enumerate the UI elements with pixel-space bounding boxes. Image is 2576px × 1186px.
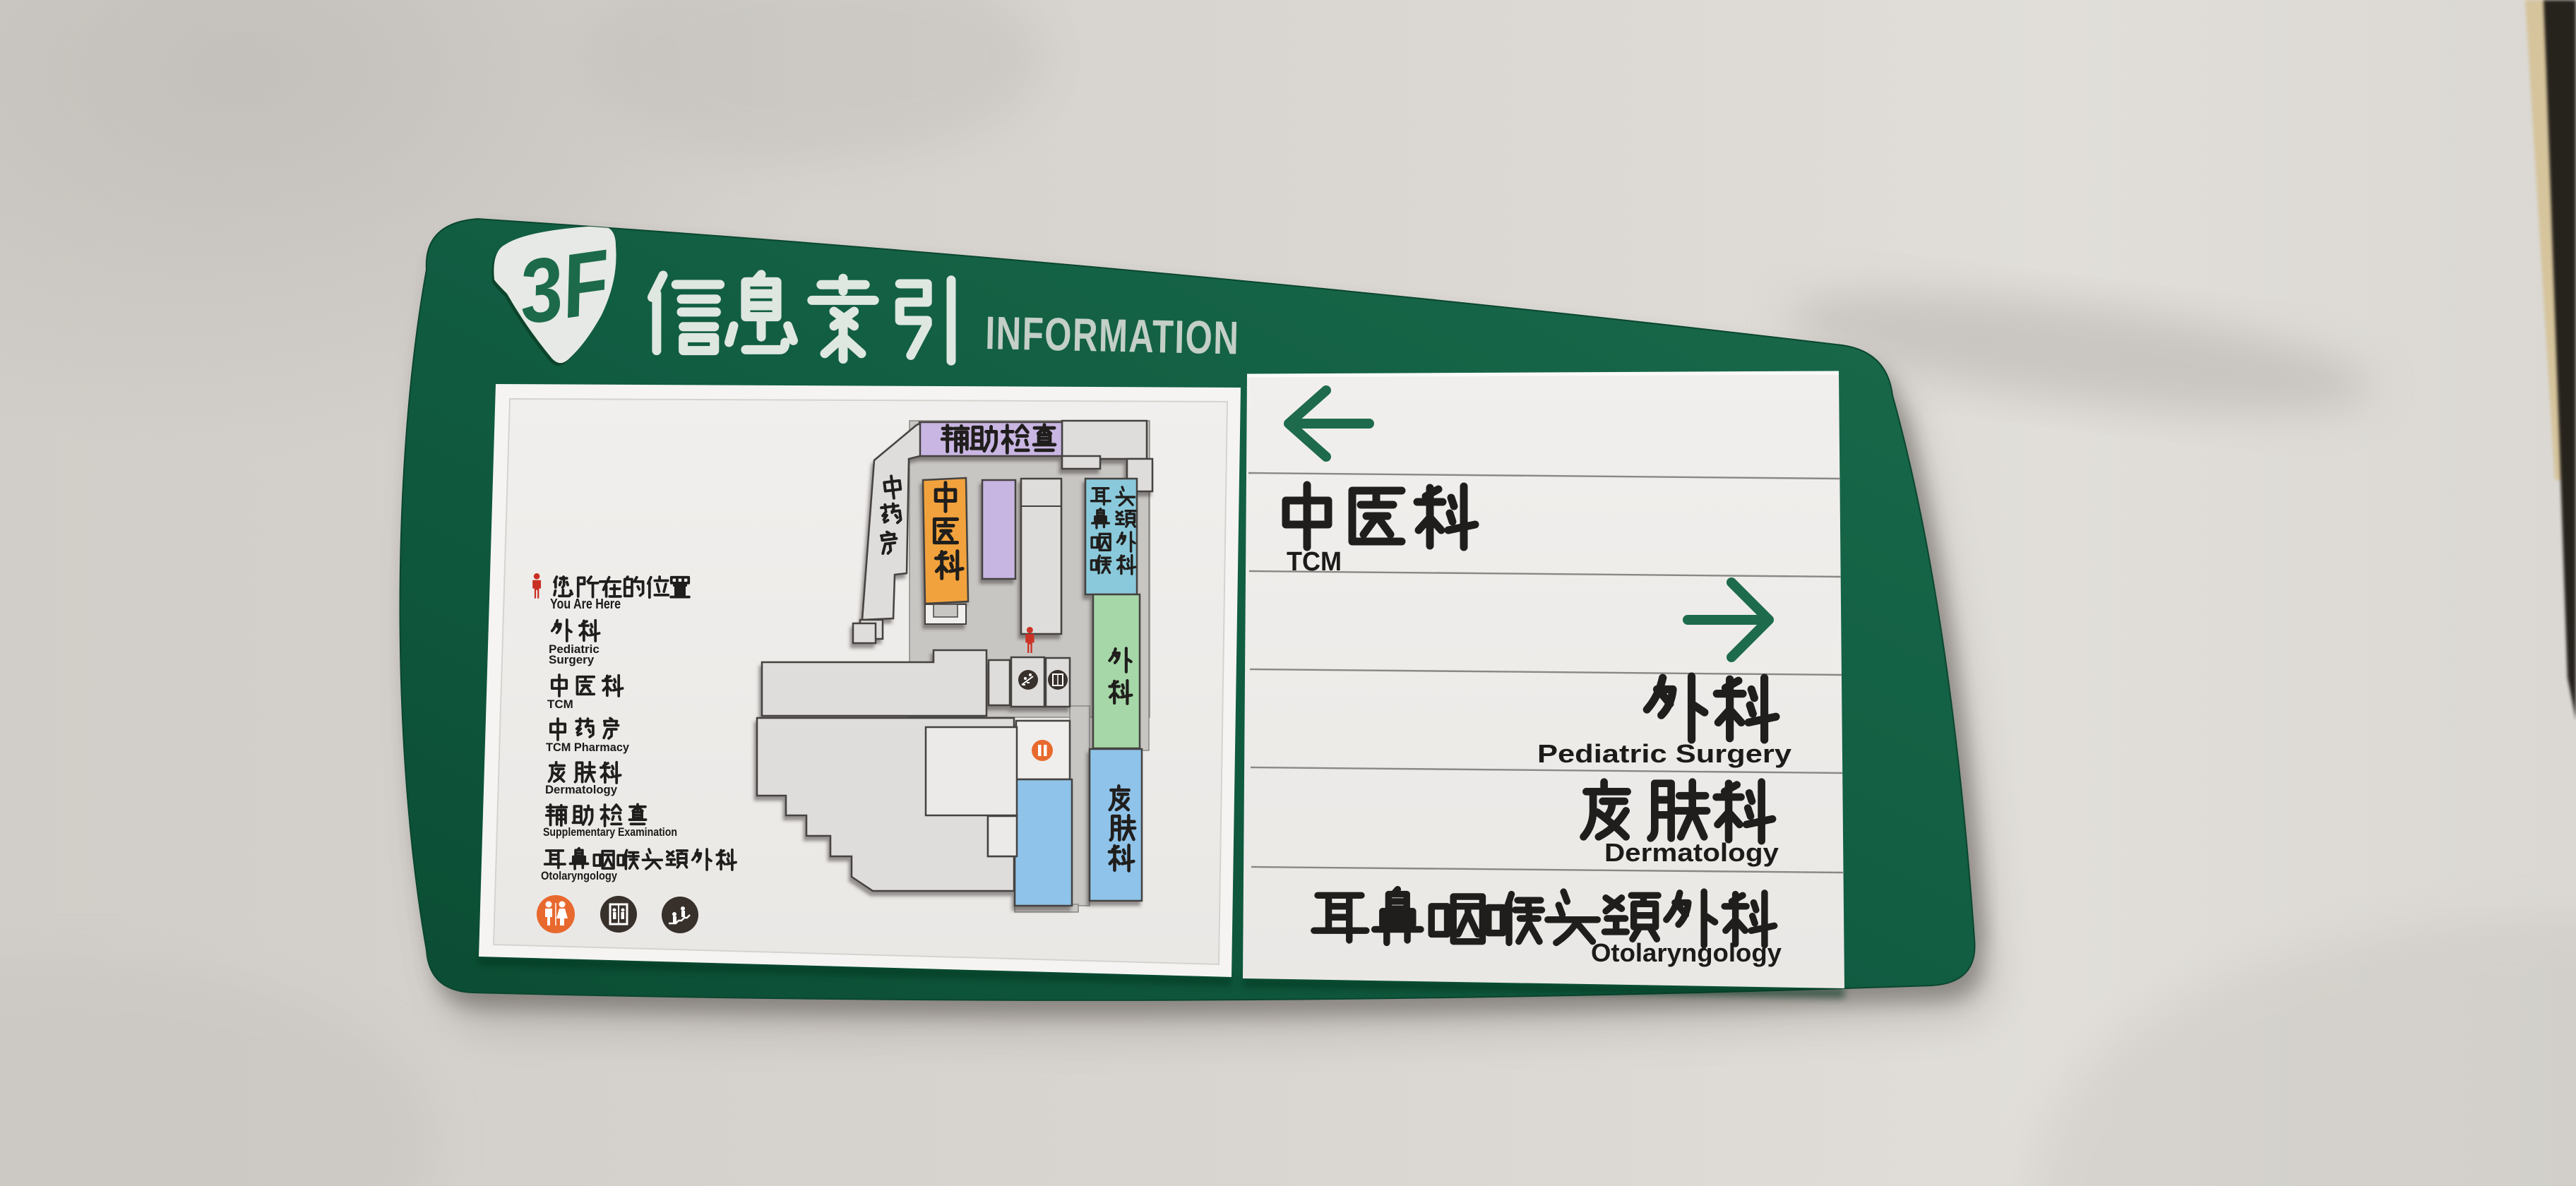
svg-text:3F: 3F bbox=[513, 231, 618, 344]
svg-text:Supplementary Examination: Supplementary Examination bbox=[543, 825, 677, 839]
svg-text:TCM: TCM bbox=[547, 697, 573, 711]
svg-text:TCM: TCM bbox=[1287, 547, 1342, 577]
svg-text:Dermatology: Dermatology bbox=[1604, 838, 1779, 867]
svg-text:You Are Here: You Are Here bbox=[550, 597, 621, 612]
svg-text:Surgery: Surgery bbox=[549, 653, 595, 666]
svg-text:Otolaryngology: Otolaryngology bbox=[541, 869, 617, 882]
svg-text:TCM Pharmacy: TCM Pharmacy bbox=[546, 741, 630, 754]
svg-text:Pediatric Surgery: Pediatric Surgery bbox=[1537, 739, 1791, 768]
svg-text:Otolaryngology: Otolaryngology bbox=[1591, 938, 1782, 967]
svg-text:Dermatology: Dermatology bbox=[545, 783, 618, 796]
svg-text:INFORMATION: INFORMATION bbox=[985, 306, 1240, 364]
